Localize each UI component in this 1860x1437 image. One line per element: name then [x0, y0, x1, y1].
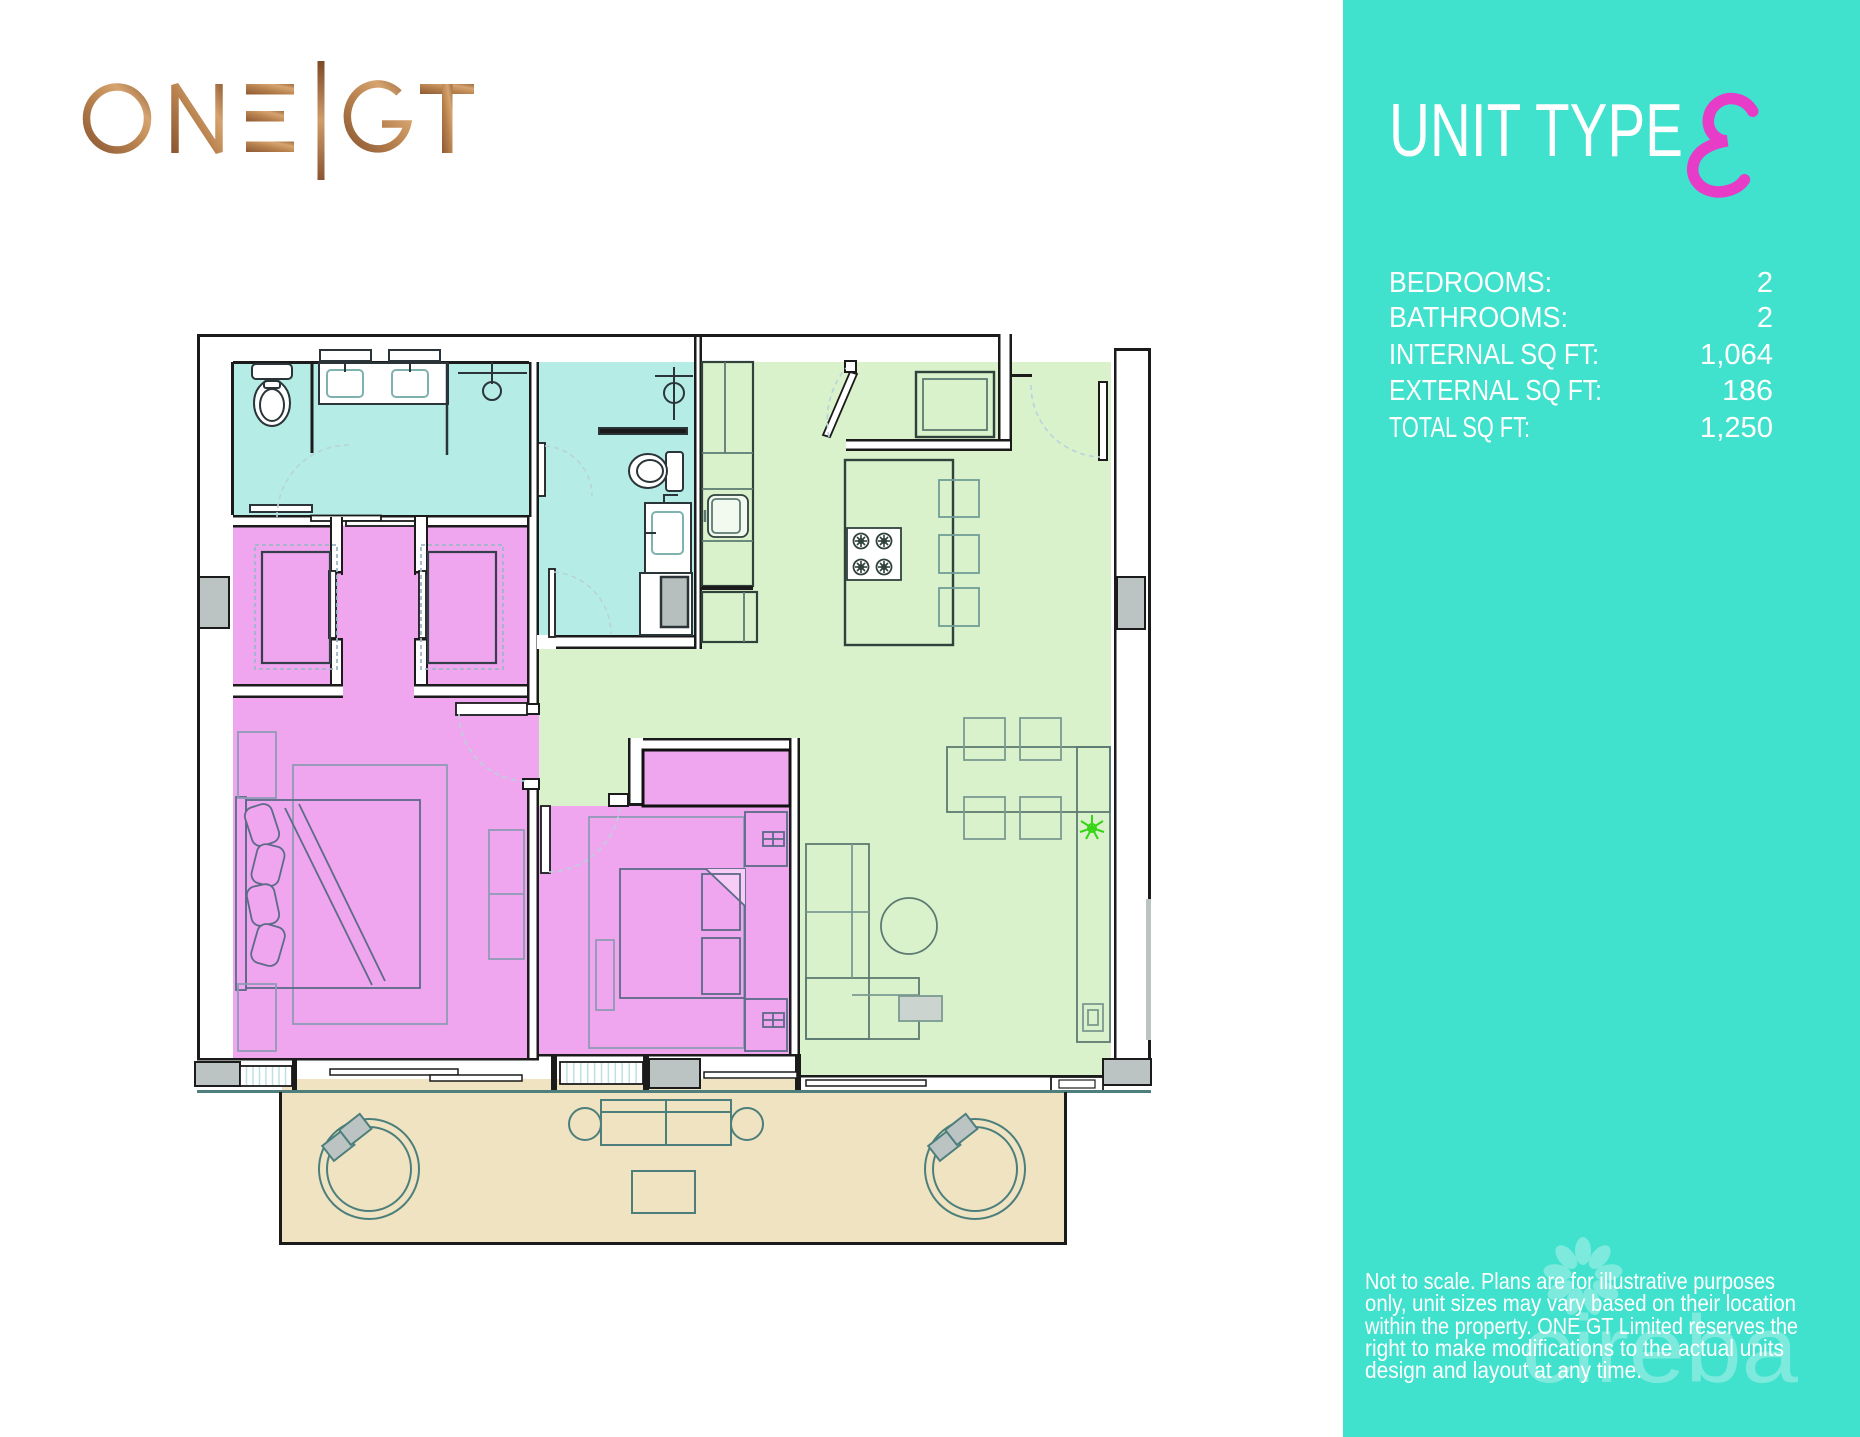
- svg-text:2: 2: [1757, 302, 1773, 334]
- svg-text:1,250: 1,250: [1700, 412, 1773, 444]
- svg-text:186: 186: [1722, 375, 1773, 407]
- svg-text:UNIT TYPE: UNIT TYPE: [1389, 88, 1683, 172]
- svg-text:design and layout at any time.: design and layout at any time.: [1365, 1357, 1642, 1383]
- svg-text:TOTAL SQ FT:: TOTAL SQ FT:: [1389, 412, 1530, 444]
- svg-text:BEDROOMS:: BEDROOMS:: [1389, 267, 1552, 299]
- svg-text:BATHROOMS:: BATHROOMS:: [1389, 302, 1568, 334]
- svg-text:2: 2: [1757, 267, 1773, 299]
- svg-text:INTERNAL SQ FT:: INTERNAL SQ FT:: [1389, 339, 1599, 371]
- svg-text:1,064: 1,064: [1700, 339, 1773, 371]
- svg-text:EXTERNAL SQ FT:: EXTERNAL SQ FT:: [1389, 375, 1602, 407]
